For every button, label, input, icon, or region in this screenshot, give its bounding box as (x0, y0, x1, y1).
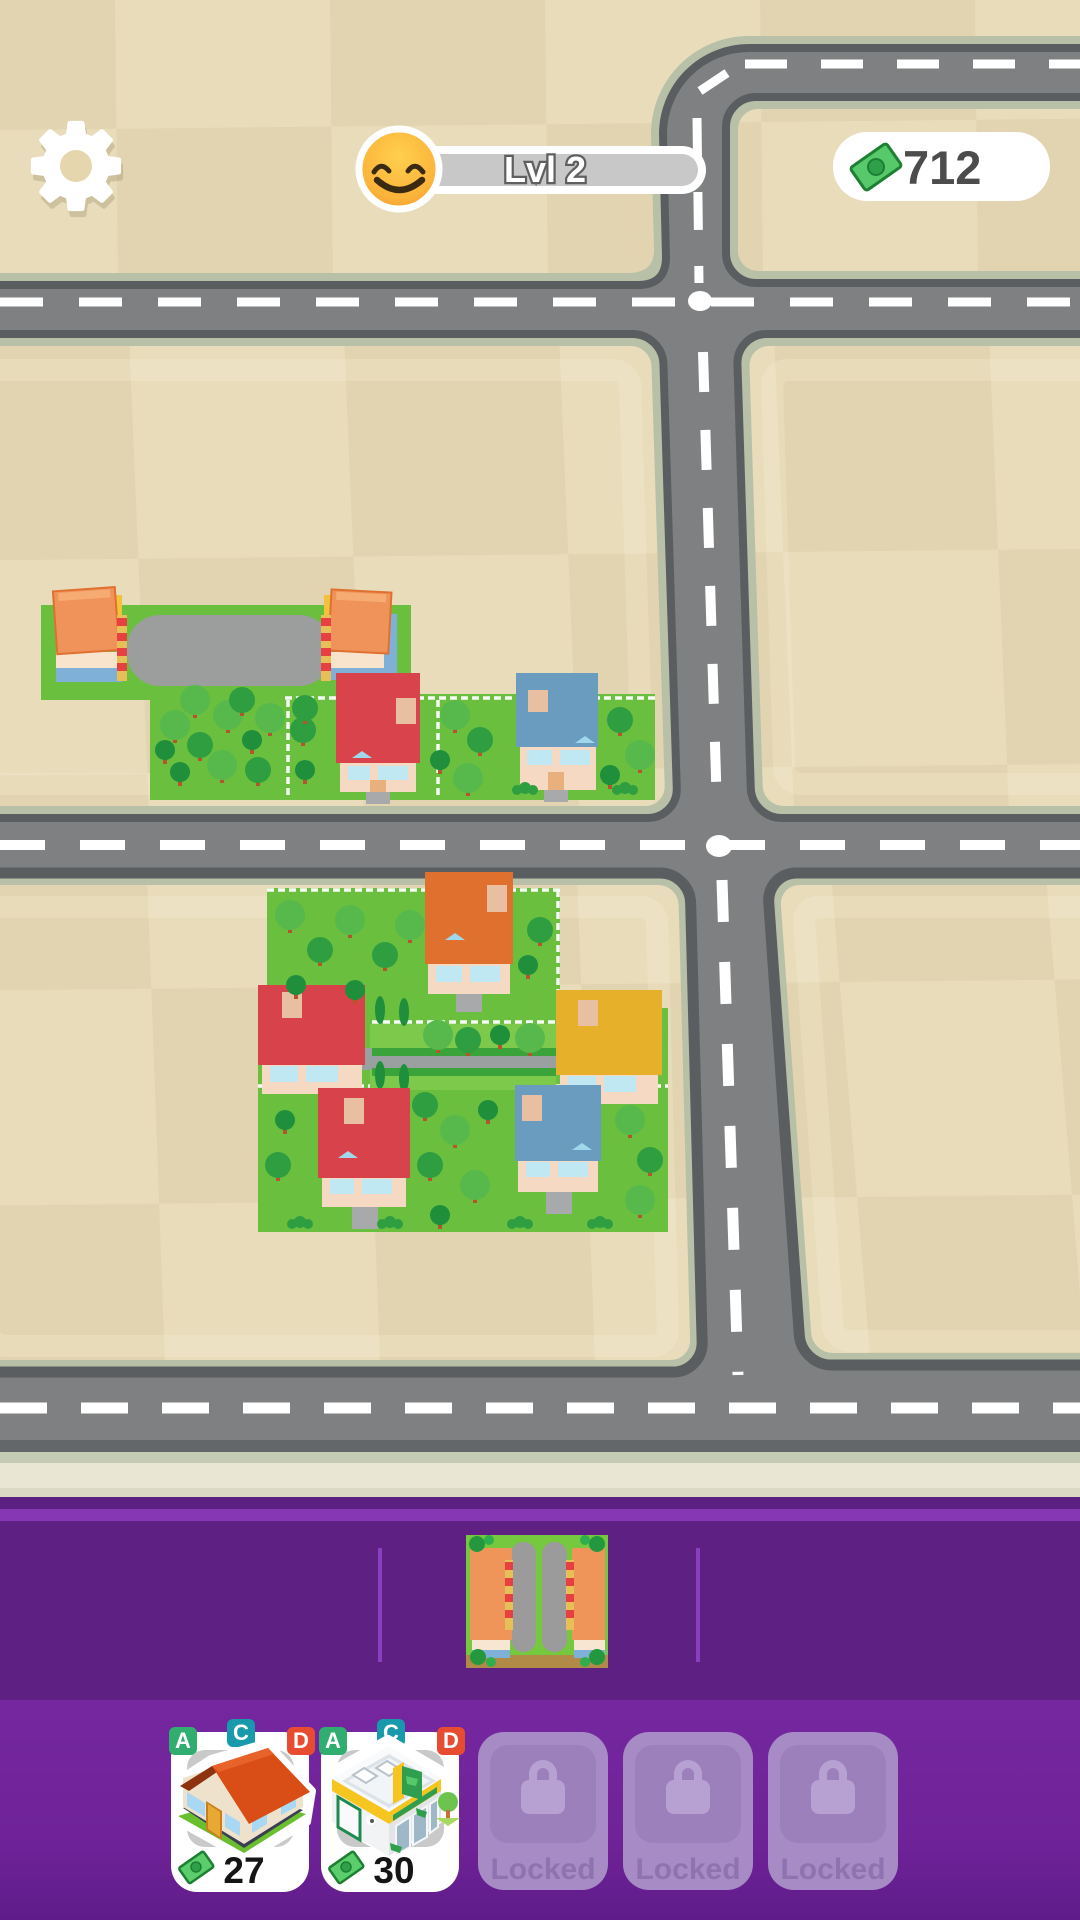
svg-text:A: A (325, 1728, 341, 1753)
svg-text:Locked: Locked (780, 1853, 885, 1886)
svg-text:30: 30 (373, 1850, 414, 1891)
svg-text:Lvl 2: Lvl 2 (504, 149, 586, 190)
svg-text:Locked: Locked (490, 1853, 595, 1886)
svg-text:D: D (293, 1728, 309, 1753)
svg-text:Locked: Locked (635, 1853, 740, 1886)
svg-text:712: 712 (903, 141, 981, 194)
svg-text:C: C (233, 1720, 249, 1745)
svg-text:D: D (443, 1728, 459, 1753)
svg-text:A: A (175, 1728, 191, 1753)
svg-text:27: 27 (223, 1850, 264, 1891)
